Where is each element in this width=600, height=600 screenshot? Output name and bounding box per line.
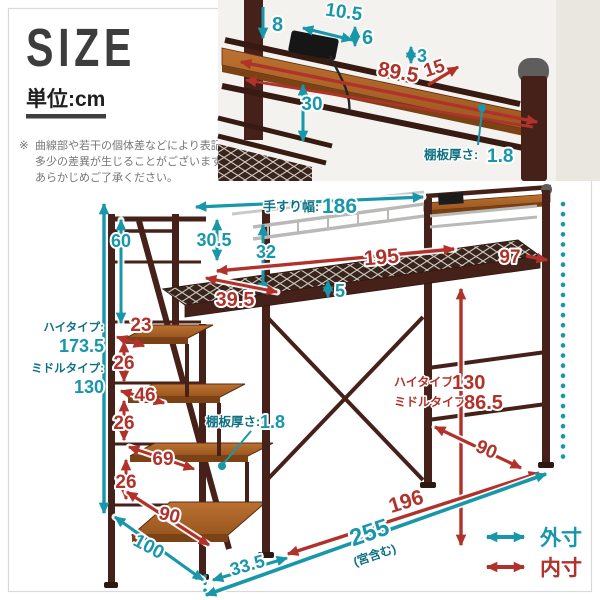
dim-head-width: 97 [499,247,520,268]
head-guard-rail-2 [430,217,537,227]
note-line-3: あらかじめご了承ください。 [35,170,178,184]
dim-high-label: ハイタイプ: [43,320,104,334]
head-rail-1 [428,352,546,368]
dim-thickness-label: 棚板厚さ: [424,147,478,162]
dim-frame-height: 5 [335,281,345,301]
dim-landing-depth: 39.5 [216,289,255,311]
legend-outer-label: 外寸 [539,526,582,550]
note-mark: ※ [19,140,29,152]
dim-under-high: 130 [452,372,485,394]
dim-thickness: 1.8 [487,146,513,167]
guard-rail-bottom [253,216,424,239]
dim-step2: 46 [134,385,155,406]
dim-riser1: 26 [113,353,134,374]
unit-label: 単位:cm [26,87,105,111]
tread-support-3 [245,462,249,502]
dim-under-middle: 86.5 [464,392,503,414]
tread-support-2 [217,403,221,456]
dim-guard1: 30.5 [196,230,231,250]
head-shelf-outlet [438,192,464,205]
header: SIZE 単位:cm ※ 曲線部や若干の個体差などにより表記と 多少の差異が生じ… [19,18,233,184]
dim-high-height: 173.5 [59,336,104,356]
dim-rail-drop: 30 [301,94,322,115]
legend: 外寸 内寸 [487,526,582,580]
dim-thickness2: 1.8 [260,412,285,432]
dim-inner-length: 195 [363,245,400,271]
dim-middle-height: 130 [74,377,104,397]
bed-foot-right [538,462,554,468]
dim-riser2: 26 [113,413,134,434]
dim-middle-label: ミドルタイプ: [31,361,104,375]
dim-step1: 23 [130,315,151,336]
page-title: SIZE [26,18,136,78]
dim-handrail-width: 186 [322,195,357,218]
thickness2-pointer-dot [218,462,226,470]
bed-foot-middle [420,482,436,488]
thickness-pointer-dot [478,104,486,112]
arrow-total-inner [288,473,539,554]
dim-under-high-label: ハイタイプ: [394,374,457,389]
closeup-right-post [521,76,547,181]
note-line-1: 曲線部や若干の個体差などにより表記と [35,138,233,152]
wall-shadow-column [556,0,600,181]
legend-inner-label: 内寸 [540,556,582,580]
dim-top-to-step: 60 [111,231,131,251]
dim-step3: 69 [152,449,173,470]
dim-handrail-label: 手すり幅: [263,199,319,214]
stairs-foot-1 [104,582,118,588]
dim-under-middle-label: ミドルタイプ: [394,394,470,409]
stairs-back-post [108,214,115,586]
unit-underline [26,114,106,119]
dim-top-drop: 8 [272,14,283,36]
product-size-diagram-image: SIZE 単位:cm ※ 曲線部や若干の個体差などにより表記と 多少の差異が生じ… [0,0,600,600]
dim-guard2: 32 [256,242,276,262]
tread-support-1 [185,344,189,397]
note-line-2: 多少の差異が生じることがございます。 [35,154,232,168]
dim-lip: 6 [362,27,373,49]
bed-middle-post [424,198,432,486]
size-diagram-svg: SIZE 単位:cm ※ 曲線部や若干の個体差などにより表記と 多少の差異が生じ… [0,0,600,600]
bed-right-post [542,190,550,467]
dim-thickness2-label: 棚板厚さ: [206,414,260,429]
